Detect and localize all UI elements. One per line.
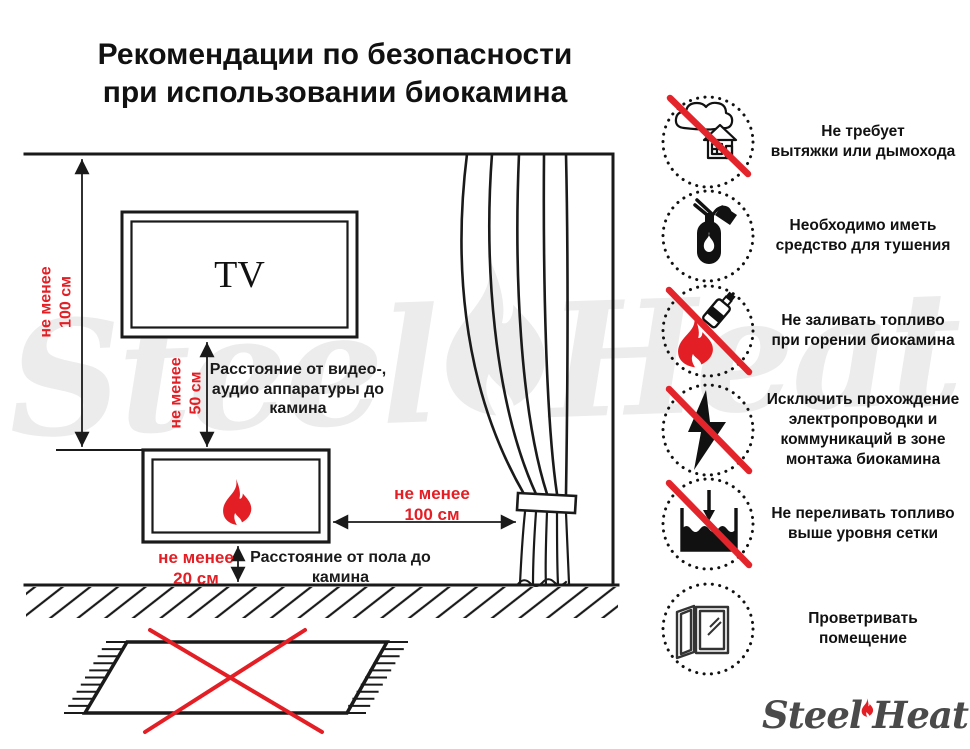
rec-label: Необходимо иметь средство для тушения	[756, 216, 964, 256]
fireplace-flame-icon	[223, 479, 251, 525]
extinguisher-icon	[660, 188, 756, 284]
no-refuel-while-burning-icon	[660, 283, 756, 379]
floor-hatching	[26, 587, 618, 618]
watermark-flame-icon	[428, 244, 559, 426]
rec-row-ventilate: Проветривать помещение	[660, 577, 964, 681]
rec-label: Не переливать топливо выше уровня сетки	[756, 504, 964, 544]
title-line-2: при использовании биокамина	[25, 74, 645, 112]
caption-tv-distance: Расстояние от видео-, аудио аппаратуры д…	[206, 360, 390, 419]
rec-label: Исключить прохождение электропроводки и …	[756, 390, 964, 469]
rec-row-no-overfill: Не переливать топливо выше уровня сетки	[660, 470, 964, 578]
dim-label-curtain-gap: не менее 100 см	[362, 484, 502, 525]
ventilate-icon	[660, 581, 756, 677]
curtain-tie	[517, 493, 576, 513]
dim-label-tv-gap: не менее 50 см	[166, 338, 205, 448]
dim-label-floor-gap: не менее 20 см	[146, 548, 246, 589]
caption-floor-distance: Расстояние от пола до камина	[248, 548, 433, 587]
rec-label: Проветривать помещение	[756, 609, 964, 649]
page-title: Рекомендации по безопасности при использ…	[25, 36, 645, 112]
no-chimney-icon	[660, 94, 756, 190]
rec-row-no-refuel: Не заливать топливо при горении биокамин…	[660, 281, 964, 381]
rug-red-cross-icon	[145, 630, 322, 732]
tv-label: TV	[122, 212, 357, 337]
steelheat-logo: Steel Heat	[762, 686, 968, 744]
rec-label: Не требует вытяжки или дымохода	[756, 122, 964, 162]
dim-label-height: не менее 100 см	[36, 227, 75, 377]
rec-row-extinguisher: Необходимо иметь средство для тушения	[660, 186, 964, 286]
no-wiring-icon	[660, 382, 756, 478]
no-overfill-icon	[660, 476, 756, 572]
title-line-1: Рекомендации по безопасности	[25, 36, 645, 74]
rec-row-no-chimney: Не требует вытяжки или дымохода	[660, 90, 964, 194]
logo-word-heat: Heat	[872, 693, 968, 737]
rec-label: Не заливать топливо при горении биокамин…	[756, 311, 964, 351]
rug-crossed	[65, 630, 407, 732]
logo-word-steel: Steel	[762, 693, 862, 737]
